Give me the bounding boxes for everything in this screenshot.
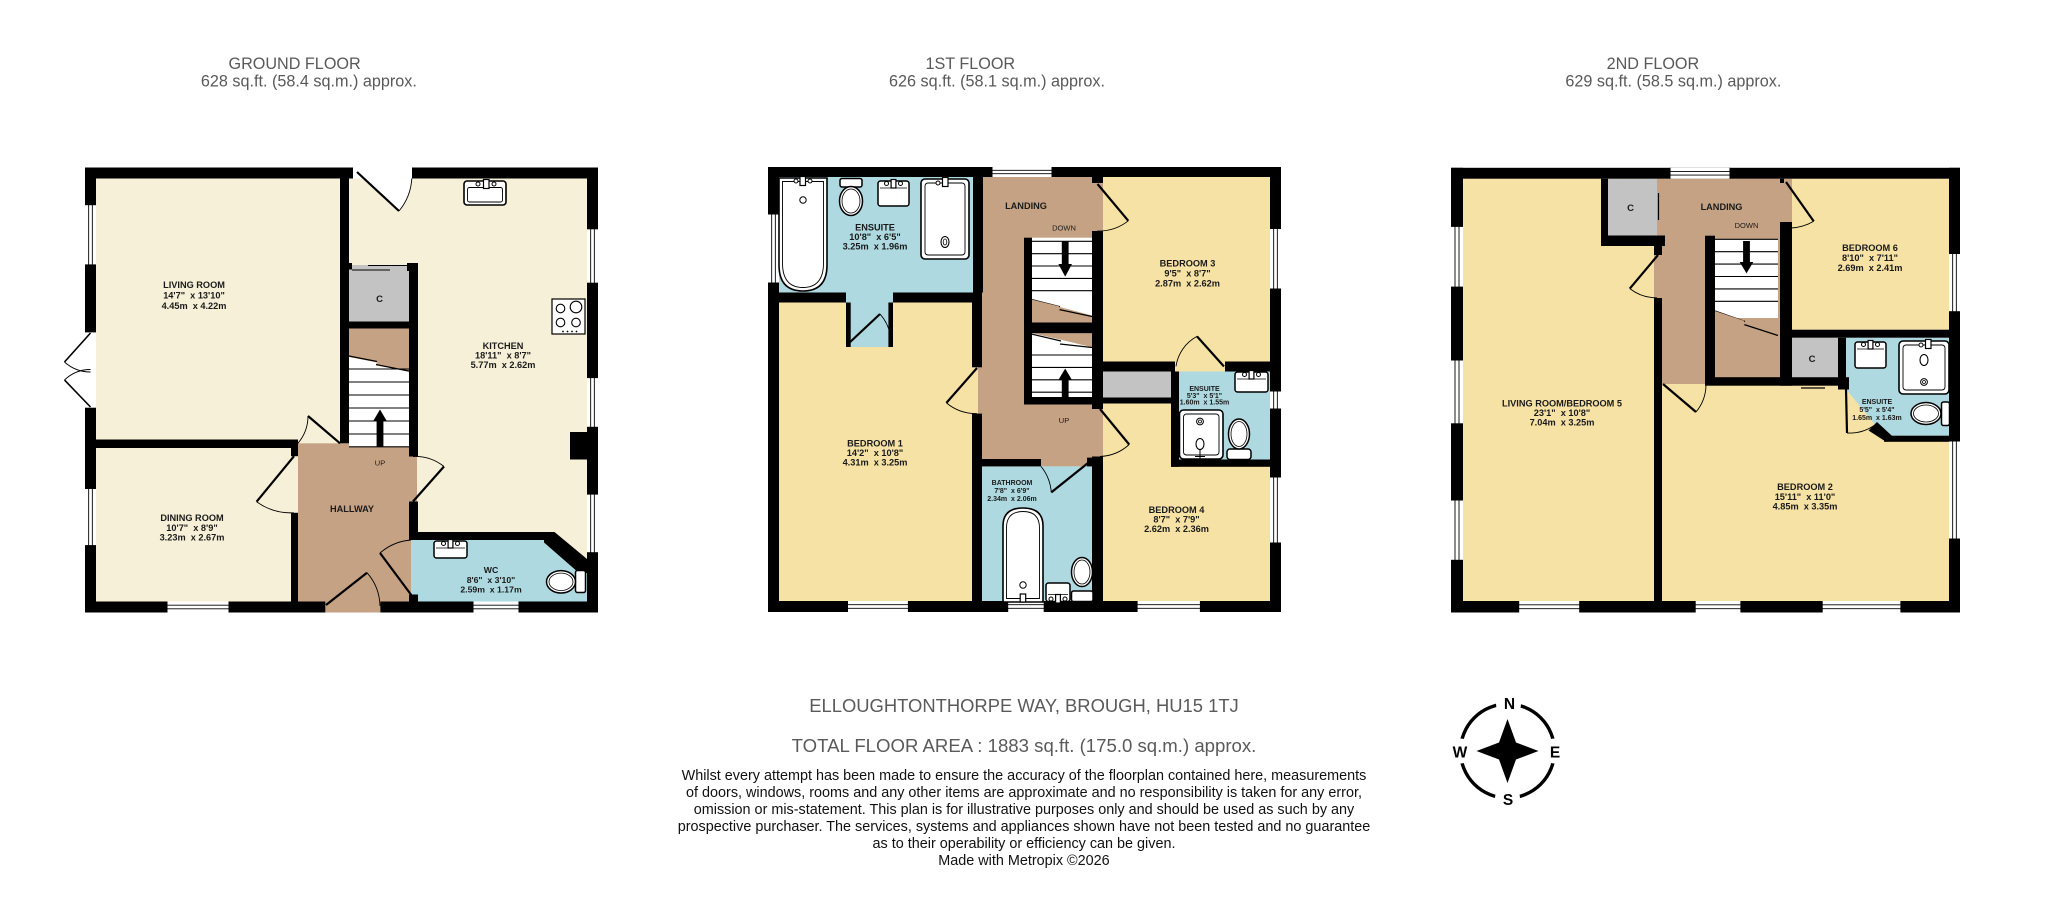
- svg-text:KITCHEN: KITCHEN: [483, 341, 524, 351]
- svg-text:2ND FLOOR: 2ND FLOOR: [1607, 55, 1700, 73]
- svg-text:10'7" x 8'9": 10'7" x 8'9": [166, 523, 217, 533]
- svg-text:ENSUITE: ENSUITE: [855, 223, 895, 233]
- svg-text:10'8" x 6'5": 10'8" x 6'5": [849, 232, 900, 242]
- svg-text:5.77m x 2.62m: 5.77m x 2.62m: [471, 360, 536, 370]
- svg-text:2.87m x 2.62m: 2.87m x 2.62m: [1155, 279, 1220, 289]
- svg-text:4.31m x 3.25m: 4.31m x 3.25m: [843, 458, 908, 468]
- svg-text:629 sq.ft. (58.5 sq.m.) approx: 629 sq.ft. (58.5 sq.m.) approx.: [1565, 73, 1781, 91]
- svg-text:E: E: [1550, 745, 1560, 762]
- svg-text:7.04m x 3.25m: 7.04m x 3.25m: [1530, 418, 1595, 428]
- svg-text:2.34m x 2.06m: 2.34m x 2.06m: [987, 496, 1036, 503]
- svg-text:DINING ROOM: DINING ROOM: [160, 513, 224, 523]
- svg-text:C: C: [1627, 203, 1634, 214]
- svg-text:of doors, windows, rooms and a: of doors, windows, rooms and any other i…: [686, 785, 1362, 801]
- svg-text:prospective purchaser. The ser: prospective purchaser. The services, sys…: [678, 819, 1371, 835]
- svg-text:C: C: [1809, 354, 1816, 365]
- svg-text:UP: UP: [375, 459, 385, 468]
- svg-text:HALLWAY: HALLWAY: [330, 504, 374, 514]
- svg-text:LANDING: LANDING: [1701, 202, 1743, 212]
- svg-text:W: W: [1453, 745, 1468, 762]
- svg-text:18'11" x 8'7": 18'11" x 8'7": [475, 351, 531, 361]
- svg-text:15'11" x 11'0": 15'11" x 11'0": [1775, 492, 1836, 502]
- svg-text:ENSUITE: ENSUITE: [1189, 386, 1220, 393]
- svg-text:1.65m x 1.63m: 1.65m x 1.63m: [1852, 415, 1901, 422]
- svg-text:UP: UP: [1059, 416, 1069, 425]
- svg-text:as to their operability or eff: as to their operability or efficiency ca…: [873, 836, 1176, 852]
- svg-text:5'5" x 5'4": 5'5" x 5'4": [1859, 407, 1894, 414]
- svg-text:3.23m x 2.67m: 3.23m x 2.67m: [160, 533, 225, 543]
- svg-text:GROUND FLOOR: GROUND FLOOR: [228, 55, 360, 73]
- svg-text:BEDROOM 1: BEDROOM 1: [847, 439, 903, 449]
- svg-text:9'5" x 8'7": 9'5" x 8'7": [1164, 269, 1210, 279]
- svg-text:LIVING ROOM: LIVING ROOM: [163, 280, 225, 290]
- svg-text:628 sq.ft. (58.4 sq.m.) approx: 628 sq.ft. (58.4 sq.m.) approx.: [201, 73, 417, 91]
- svg-text:8'7" x 7'9": 8'7" x 7'9": [1153, 515, 1199, 525]
- svg-text:1ST FLOOR: 1ST FLOOR: [925, 55, 1015, 73]
- svg-text:8'10" x 7'11": 8'10" x 7'11": [1842, 253, 1898, 263]
- svg-text:BEDROOM 4: BEDROOM 4: [1149, 505, 1206, 515]
- svg-text:7'8" x 6'9": 7'8" x 6'9": [994, 488, 1029, 495]
- svg-text:BEDROOM 2: BEDROOM 2: [1777, 482, 1833, 492]
- svg-text:DOWN: DOWN: [1052, 224, 1076, 233]
- svg-text:14'2" x 10'8": 14'2" x 10'8": [847, 448, 904, 458]
- svg-text:8'6" x 3'10": 8'6" x 3'10": [467, 575, 516, 585]
- svg-text:ELLOUGHTONTHORPE WAY, BROUGH,: ELLOUGHTONTHORPE WAY, BROUGH, HU15 1TJ: [809, 695, 1239, 716]
- svg-text:Made with Metropix ©2026: Made with Metropix ©2026: [938, 853, 1109, 869]
- svg-text:C: C: [376, 294, 383, 305]
- svg-text:BEDROOM 3: BEDROOM 3: [1160, 259, 1216, 269]
- svg-text:23'1" x 10'8": 23'1" x 10'8": [1534, 408, 1591, 418]
- svg-text:3.25m x 1.96m: 3.25m x 1.96m: [843, 242, 908, 252]
- svg-text:LIVING ROOM/BEDROOM 5: LIVING ROOM/BEDROOM 5: [1502, 399, 1622, 409]
- svg-text:4.45m x 4.22m: 4.45m x 4.22m: [162, 301, 227, 311]
- svg-text:WC: WC: [484, 565, 499, 575]
- svg-text:ENSUITE: ENSUITE: [1862, 399, 1893, 406]
- svg-text:N: N: [1504, 696, 1515, 713]
- svg-text:S: S: [1503, 792, 1513, 809]
- svg-text:omission or mis-statement. Thi: omission or mis-statement. This plan is …: [694, 802, 1355, 818]
- svg-text:TOTAL FLOOR AREA : 1883 sq.ft.: TOTAL FLOOR AREA : 1883 sq.ft. (175.0 sq…: [792, 735, 1257, 756]
- svg-text:2.69m x 2.41m: 2.69m x 2.41m: [1838, 263, 1903, 273]
- svg-text:DOWN: DOWN: [1735, 221, 1759, 230]
- svg-text:2.62m x 2.36m: 2.62m x 2.36m: [1144, 524, 1209, 534]
- svg-text:626 sq.ft. (58.1 sq.m.) approx: 626 sq.ft. (58.1 sq.m.) approx.: [889, 73, 1105, 91]
- svg-text:Whilst every attempt has been: Whilst every attempt has been made to en…: [682, 768, 1367, 784]
- svg-text:2.59m x 1.17m: 2.59m x 1.17m: [460, 585, 522, 595]
- svg-text:LANDING: LANDING: [1005, 201, 1047, 211]
- svg-text:BATHROOM: BATHROOM: [992, 480, 1033, 487]
- svg-text:1.60m x 1.55m: 1.60m x 1.55m: [1180, 400, 1229, 407]
- svg-text:4.85m x 3.35m: 4.85m x 3.35m: [1773, 502, 1838, 512]
- svg-text:14'7" x 13'10": 14'7" x 13'10": [163, 291, 225, 301]
- svg-text:BEDROOM 6: BEDROOM 6: [1842, 243, 1898, 253]
